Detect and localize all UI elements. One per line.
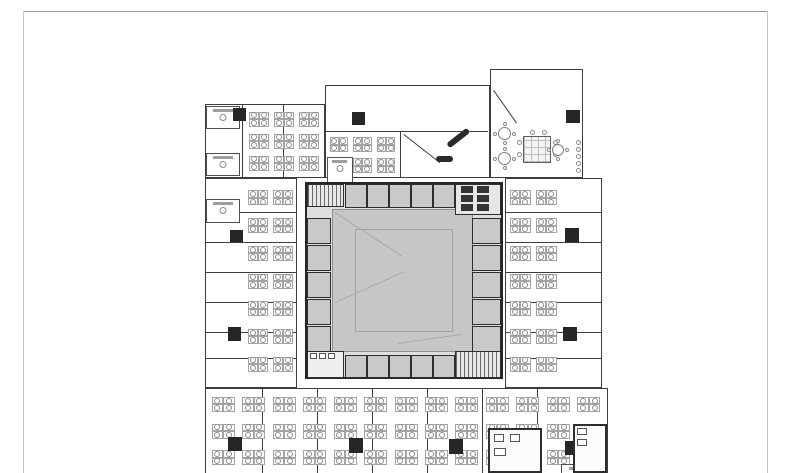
desk-cell (299, 134, 309, 142)
desk-cell (510, 301, 521, 309)
sheet-border-top (23, 11, 767, 12)
desk-cell (254, 404, 266, 412)
office-cell (206, 153, 240, 176)
desk-cell (510, 198, 521, 206)
desk-cell (284, 141, 294, 149)
desk-cell (547, 458, 559, 466)
desk-cell (510, 357, 521, 365)
desk-cell (520, 357, 531, 365)
desk-cell (455, 431, 467, 439)
desk-cell (395, 397, 407, 405)
desk-cell (510, 246, 521, 254)
desk-cluster (212, 397, 235, 412)
service-fixture (510, 434, 520, 442)
service-fixture (494, 448, 506, 456)
desk-cell (395, 404, 407, 412)
desk-cell (362, 137, 371, 145)
desk-cell (520, 226, 531, 234)
desk-cell (248, 190, 258, 198)
desk-cluster (273, 424, 296, 439)
desk-cell (406, 458, 418, 466)
desk-cell (364, 431, 376, 439)
desk-cell (284, 397, 296, 405)
desk-cell (362, 166, 371, 174)
desk-cell (425, 424, 437, 432)
desk-cell (284, 450, 296, 458)
core-cell (472, 218, 501, 244)
desk-cluster (536, 246, 557, 261)
desk-cell (283, 246, 293, 254)
core-cell (472, 299, 501, 325)
desk-cluster (536, 329, 557, 344)
desk-cell (455, 458, 467, 466)
desk-cell (284, 458, 296, 466)
desk-cluster (273, 357, 293, 372)
desk-cell (212, 404, 224, 412)
desk-cell (254, 458, 266, 466)
storage-block (233, 108, 246, 121)
core-cell (433, 184, 455, 208)
desk-cell (546, 190, 557, 198)
desk-cluster (249, 112, 269, 127)
desk-cell (353, 158, 362, 166)
desk-cluster (377, 158, 396, 173)
desk-cell (258, 226, 268, 234)
core-cell (307, 245, 331, 271)
elevator-car (477, 186, 489, 193)
desk-cell (258, 253, 268, 261)
desk-cell (376, 424, 388, 432)
desk-cluster (364, 397, 387, 412)
desk-cell (386, 137, 395, 145)
desk-cluster (299, 134, 319, 149)
desk-cell (546, 198, 557, 206)
desk-cluster (395, 424, 418, 439)
desk-cell (558, 424, 570, 432)
desk-cell (377, 158, 386, 166)
desk-cell (273, 424, 285, 432)
desk-cell (212, 458, 224, 466)
desk-cell (315, 450, 327, 458)
storage-block (449, 439, 463, 454)
desk-cell (248, 309, 258, 317)
desk-cell (242, 397, 254, 405)
desk-cell (249, 119, 259, 127)
desk-cluster (248, 301, 268, 316)
desk-cell (273, 301, 283, 309)
desk-cell (258, 190, 268, 198)
desk-cell (510, 329, 521, 337)
desk-cell (273, 397, 285, 405)
desk-cell (547, 404, 559, 412)
desk-cell (406, 424, 418, 432)
desk-cell (520, 281, 531, 289)
desk-cell (273, 336, 283, 344)
desk-cell (425, 404, 437, 412)
desk-cell (274, 112, 284, 120)
desk-cell (510, 364, 521, 372)
desk-cell (455, 397, 467, 405)
desk-cell (259, 112, 269, 120)
desk-cell (223, 450, 235, 458)
desk-cluster (353, 137, 372, 152)
desk-cluster (249, 134, 269, 149)
desk-cell (467, 458, 479, 466)
desk-cell (536, 274, 547, 282)
desk-cell (406, 450, 418, 458)
office-desk (213, 109, 233, 112)
stair-northwest (307, 184, 344, 207)
storage-block (563, 327, 577, 341)
desk-cell (425, 450, 437, 458)
desk-cell (520, 218, 531, 226)
round-table-chair (565, 148, 569, 152)
desk-cluster (516, 397, 539, 412)
desk-cell (273, 190, 283, 198)
desk-cell (520, 190, 531, 198)
desk-cell (536, 218, 547, 226)
desk-cell (258, 218, 268, 226)
desk-cell (315, 397, 327, 405)
desk-cell (377, 166, 386, 174)
restroom-fixture (328, 353, 335, 359)
desk-cluster (303, 424, 326, 439)
desk-cluster (455, 397, 478, 412)
desk-cell (248, 226, 258, 234)
desk-cell (283, 274, 293, 282)
desk-cell (212, 424, 224, 432)
desk-cell (589, 397, 601, 405)
desk-cluster (334, 397, 357, 412)
core-cell (307, 299, 331, 325)
desk-cell (546, 226, 557, 234)
lounge-chair (517, 152, 522, 157)
desk-cluster (274, 134, 294, 149)
desk-cell (376, 431, 388, 439)
desk-cell (299, 112, 309, 120)
round-table-chair (556, 139, 560, 143)
desk-cluster (273, 397, 296, 412)
desk-cell (283, 357, 293, 365)
desk-cluster (334, 424, 357, 439)
desk-cluster (248, 274, 268, 289)
desk-cell (546, 309, 557, 317)
desk-cluster (425, 450, 448, 465)
desk-cell (406, 431, 418, 439)
round-table (498, 152, 511, 165)
desk-cell (536, 329, 547, 337)
storage-block (566, 110, 580, 123)
desk-cell (303, 404, 315, 412)
desk-cell (259, 141, 269, 149)
desk-cell (546, 246, 557, 254)
lounge-chair (517, 140, 522, 145)
desk-cell (273, 198, 283, 206)
desk-cell (377, 137, 386, 145)
desk-cell (248, 274, 258, 282)
desk-cell (283, 253, 293, 261)
desk-cell (274, 156, 284, 164)
core-cell (345, 184, 367, 208)
desk-cell (425, 431, 437, 439)
desk-cell (258, 198, 268, 206)
desk-cell (536, 364, 547, 372)
interior-wall (482, 388, 483, 473)
core-cell (472, 245, 501, 271)
desk-cell (364, 458, 376, 466)
desk-cell (510, 226, 521, 234)
desk-cell (510, 274, 521, 282)
desk-cell (455, 404, 467, 412)
desk-cell (536, 253, 547, 261)
desk-cell (436, 404, 448, 412)
desk-cell (273, 364, 283, 372)
storage-block (228, 327, 241, 341)
round-table (552, 144, 564, 156)
desk-cluster (510, 329, 531, 344)
desk-cluster (577, 397, 600, 412)
desk-cell (536, 357, 547, 365)
desk-cell (223, 458, 235, 466)
banquette-chair (576, 161, 581, 166)
desk-cell (520, 198, 531, 206)
desk-cell (345, 397, 357, 405)
desk-cell (258, 246, 268, 254)
desk-cluster (547, 424, 570, 439)
desk-cell (364, 424, 376, 432)
desk-cell (589, 404, 601, 412)
desk-cell (520, 274, 531, 282)
desk-cell (248, 198, 258, 206)
office-chair (336, 165, 343, 172)
desk-cluster (248, 329, 268, 344)
desk-cell (248, 253, 258, 261)
round-table-chair (493, 132, 497, 136)
desk-cell (425, 458, 437, 466)
desk-cluster (510, 301, 531, 316)
desk-cell (547, 431, 559, 439)
desk-cell (212, 397, 224, 405)
desk-cluster (274, 156, 294, 171)
desk-cell (212, 431, 224, 439)
desk-cell (273, 226, 283, 234)
desk-cell (546, 274, 557, 282)
core-cell (389, 184, 411, 208)
desk-cell (406, 397, 418, 405)
desk-cell (283, 190, 293, 198)
round-table-chair (547, 148, 551, 152)
desk-cell (395, 450, 407, 458)
desk-cell (284, 404, 296, 412)
desk-cell (546, 357, 557, 365)
desk-cell (345, 458, 357, 466)
desk-cell (520, 336, 531, 344)
desk-cell (520, 301, 531, 309)
storage-block (228, 437, 242, 451)
desk-cell (510, 309, 521, 317)
desk-cell (536, 226, 547, 234)
desk-cell (386, 166, 395, 174)
desk-cell (516, 404, 528, 412)
desk-cluster (425, 424, 448, 439)
desk-cell (248, 336, 258, 344)
desk-cell (315, 404, 327, 412)
desk-cluster (395, 450, 418, 465)
desk-cell (273, 253, 283, 261)
desk-cluster (536, 357, 557, 372)
round-table-chair (556, 157, 560, 161)
sheet-border-left (23, 11, 24, 473)
desk-cell (258, 364, 268, 372)
desk-cell (248, 218, 258, 226)
office-desk (213, 156, 233, 159)
desk-cell (334, 458, 346, 466)
desk-cell (536, 281, 547, 289)
desk-cell (334, 431, 346, 439)
round-table-chair (503, 141, 507, 145)
round-table-chair (493, 157, 497, 161)
desk-cell (536, 301, 547, 309)
desk-cluster (510, 190, 531, 205)
desk-cell (242, 458, 254, 466)
service-fixture (577, 439, 587, 446)
desk-cell (520, 329, 531, 337)
round-table (498, 127, 511, 140)
elevator-car (461, 195, 473, 202)
desk-cell (259, 163, 269, 171)
desk-cell (283, 218, 293, 226)
desk-cell (377, 145, 386, 153)
core-cell (433, 355, 455, 378)
desk-cluster (425, 397, 448, 412)
desk-cluster (242, 424, 265, 439)
desk-cell (353, 145, 362, 153)
desk-cell (273, 450, 285, 458)
desk-cluster (455, 424, 478, 439)
office-cell (206, 199, 240, 222)
desk-cell (273, 329, 283, 337)
desk-cell (334, 424, 346, 432)
desk-cell (309, 141, 319, 149)
desk-cell (486, 397, 498, 405)
desk-cluster (273, 329, 293, 344)
desk-cell (546, 364, 557, 372)
desk-cell (299, 119, 309, 127)
desk-cell (520, 253, 531, 261)
desk-cluster (395, 397, 418, 412)
desk-cell (223, 424, 235, 432)
desk-cluster (303, 397, 326, 412)
desk-cluster (510, 246, 531, 261)
desk-cell (273, 281, 283, 289)
desk-cell (376, 397, 388, 405)
desk-cell (497, 397, 509, 405)
office-desk (213, 202, 233, 205)
desk-cell (309, 156, 319, 164)
desk-cell (376, 404, 388, 412)
elevator-car (461, 186, 473, 193)
desk-cell (436, 431, 448, 439)
desk-cell (315, 431, 327, 439)
core-cell (367, 184, 389, 208)
desk-cell (395, 458, 407, 466)
desk-cell (309, 119, 319, 127)
desk-cell (536, 336, 547, 344)
desk-cell (345, 404, 357, 412)
desk-cell (425, 397, 437, 405)
atrium (332, 209, 473, 352)
desk-cell (258, 274, 268, 282)
desk-cell (467, 450, 479, 458)
desk-cluster (273, 450, 296, 465)
desk-cell (274, 141, 284, 149)
desk-cell (284, 156, 294, 164)
sheet-border-right (767, 11, 768, 473)
desk-cell (510, 281, 521, 289)
desk-cell (283, 329, 293, 337)
round-table-chair (503, 166, 507, 170)
desk-cell (520, 246, 531, 254)
desk-cell (345, 424, 357, 432)
banquette-chair (576, 168, 581, 173)
desk-cell (536, 198, 547, 206)
desk-cluster (299, 112, 319, 127)
desk-cell (546, 336, 557, 344)
desk-cell (386, 145, 395, 153)
desk-cluster (273, 274, 293, 289)
desk-cell (362, 158, 371, 166)
desk-cell (254, 424, 266, 432)
desk-cell (299, 156, 309, 164)
round-table-chair (503, 147, 507, 151)
office-chair (220, 161, 227, 168)
desk-cell (536, 309, 547, 317)
desk-cell (376, 458, 388, 466)
desk-cell (273, 404, 285, 412)
desk-cell (284, 163, 294, 171)
desk-cluster (536, 190, 557, 205)
desk-cluster (353, 158, 372, 173)
banquette-chair (576, 154, 581, 159)
desk-cell (395, 431, 407, 439)
desk-cell (546, 301, 557, 309)
desk-cell (273, 458, 285, 466)
desk-cell (364, 397, 376, 405)
desk-cell (467, 404, 479, 412)
desk-cluster (364, 450, 387, 465)
desk-cell (339, 145, 348, 153)
desk-cell (497, 404, 509, 412)
office-chair (220, 207, 227, 214)
desk-cell (510, 218, 521, 226)
desk-cell (284, 119, 294, 127)
desk-cell (467, 424, 479, 432)
desk-cell (547, 450, 559, 458)
desk-cell (284, 112, 294, 120)
desk-cell (273, 357, 283, 365)
desk-cell (315, 458, 327, 466)
desk-cell (283, 309, 293, 317)
desk-cluster (273, 301, 293, 316)
core-cell (411, 184, 433, 208)
desk-cell (254, 431, 266, 439)
desk-cell (577, 397, 589, 405)
core-cell (367, 355, 389, 378)
desk-cell (339, 137, 348, 145)
desk-cell (283, 364, 293, 372)
desk-cell (283, 226, 293, 234)
desk-cell (283, 336, 293, 344)
